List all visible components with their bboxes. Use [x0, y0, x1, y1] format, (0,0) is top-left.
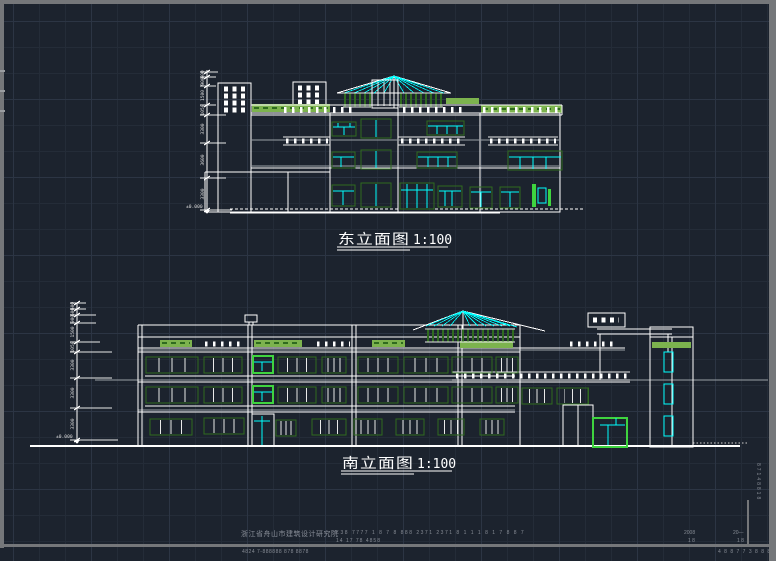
- south-elevation: 600 600 900 1500 1050 3300 3300 3300 ±0.…: [30, 301, 768, 474]
- south-dim-2: 900: [70, 315, 76, 324]
- ruler-tick-1: [0, 70, 5, 72]
- frame-right: [769, 0, 776, 561]
- south-dimension-stack: 600 600 900 1500 1050 3300 3300 3300 ±0.…: [56, 301, 118, 444]
- south-title-underline: [341, 471, 452, 474]
- east-windows-row3: [332, 183, 551, 209]
- titleblock-company: 浙江省舟山市建筑设计研究院: [241, 532, 339, 538]
- east-title-group: 东立面图 1:100: [337, 231, 452, 250]
- south-title-scale: 1:100: [417, 457, 456, 472]
- east-dim-2: 1500: [200, 90, 206, 101]
- south-tent-roof: [413, 311, 545, 342]
- east-title-scale: 1:100: [413, 233, 452, 248]
- south-windows-floor2: [146, 386, 518, 403]
- south-windows-floor3: [146, 356, 518, 373]
- ruler-tick-3: [0, 110, 5, 112]
- south-dim-5: 3300: [70, 359, 76, 370]
- east-railing-row: [283, 137, 558, 145]
- south-dim-7: 3300: [70, 418, 76, 429]
- titleblock-sheet-year: 2008: [684, 530, 695, 536]
- east-dim-3: 1050: [200, 104, 206, 115]
- east-green-door-bar: [532, 184, 536, 207]
- south-parapet: [160, 340, 615, 348]
- south-title: 南立面图: [342, 455, 414, 471]
- east-dim-5: 3600: [200, 154, 206, 165]
- east-dimension-stack: 600 900 1500 1050 3300 3600 3300 ±0.000: [186, 70, 232, 214]
- south-floor-gray-lines: [95, 350, 768, 410]
- cad-viewport[interactable]: 600 900 1500 1050 3300 3600 3300 ±0.000: [0, 0, 776, 561]
- east-main-outline: [205, 108, 560, 212]
- frame-bottom-line: [0, 544, 776, 547]
- titleblock-side-vertical: 87148818: [755, 463, 761, 501]
- south-title-group: 南立面图 1:100: [341, 455, 456, 474]
- frame-top: [0, 0, 776, 4]
- east-title-underline: [337, 247, 448, 250]
- east-left-tower: [218, 83, 251, 212]
- east-datum-label: ±0.000: [186, 204, 203, 210]
- drawing-canvas: 600 900 1500 1050 3300 3600 3300 ±0.000: [0, 0, 776, 561]
- east-roof-trellis: [343, 80, 443, 108]
- south-windows-ground: [150, 414, 504, 446]
- south-right-tower: [650, 327, 693, 447]
- titleblock-corner-marks: 4 8 8 7 7 3 8 8 8: [718, 549, 771, 555]
- titleblock-divider: [747, 500, 749, 544]
- east-dim-4: 3300: [200, 123, 206, 134]
- east-windows-row2: [332, 150, 562, 170]
- south-dim-3: 1500: [70, 326, 76, 337]
- south-dim-6: 3300: [70, 387, 76, 398]
- frame-left: [0, 0, 4, 548]
- east-elevation: 600 900 1500 1050 3300 3600 3300 ±0.000: [186, 70, 583, 250]
- south-datum-label: ±0.000: [56, 434, 73, 440]
- east-dim-1: 900: [200, 77, 206, 86]
- titleblock-date-label: 20—: [733, 530, 744, 536]
- south-dim-4: 1050: [70, 341, 76, 352]
- titleblock-numbers-row1: 工38 7777 1 8 7 8 888 2371 2371 8 1 1 1 8…: [334, 530, 525, 536]
- ruler-tick-2: [0, 90, 5, 92]
- titleblock-bottom-note: 4824 7-888888 878 8878: [242, 549, 309, 555]
- east-title: 东立面图: [338, 231, 410, 247]
